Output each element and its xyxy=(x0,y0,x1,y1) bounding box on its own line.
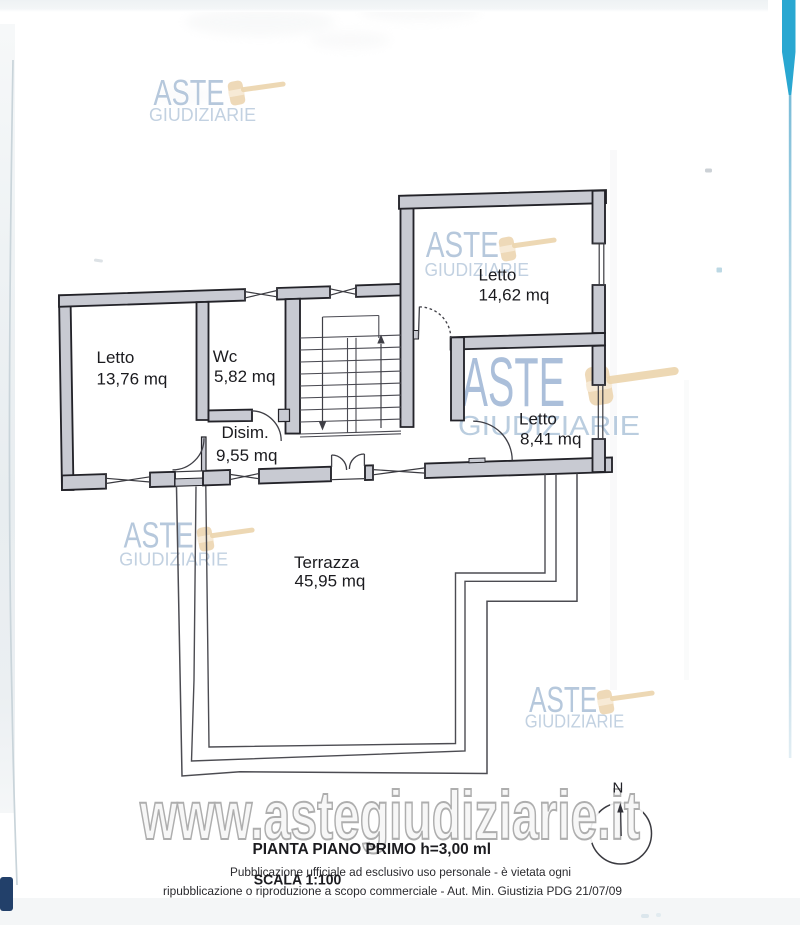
svg-text:Letto: Letto xyxy=(519,410,557,429)
svg-text:9,55 mq: 9,55 mq xyxy=(216,446,277,465)
svg-text:PIANTA PIANO PRIMO h=3,00 ml: PIANTA PIANO PRIMO h=3,00 ml xyxy=(253,841,492,858)
svg-text:8,41 mq: 8,41 mq xyxy=(520,430,581,449)
svg-text:GIUDIZIARIE: GIUDIZIARIE xyxy=(119,549,228,569)
svg-text:13,76 mq: 13,76 mq xyxy=(97,370,168,389)
svg-text:45,95 mq: 45,95 mq xyxy=(295,572,366,591)
svg-text:Letto: Letto xyxy=(97,348,135,367)
svg-text:GIUDIZIARIE: GIUDIZIARIE xyxy=(525,711,625,731)
svg-text:ripubblicazione o riproduzione: ripubblicazione o riproduzione a scopo c… xyxy=(163,884,622,898)
svg-text:14,62 mq: 14,62 mq xyxy=(479,286,550,305)
svg-text:N: N xyxy=(613,780,624,797)
svg-text:ASTE: ASTE xyxy=(426,224,499,265)
svg-text:Terrazza: Terrazza xyxy=(294,553,360,572)
svg-text:Disim.: Disim. xyxy=(222,423,269,442)
svg-text:Wc: Wc xyxy=(213,347,238,366)
svg-text:GIUDIZIARIE: GIUDIZIARIE xyxy=(149,105,256,125)
svg-text:5,82 mq: 5,82 mq xyxy=(214,367,275,386)
svg-text:Letto: Letto xyxy=(479,266,517,285)
